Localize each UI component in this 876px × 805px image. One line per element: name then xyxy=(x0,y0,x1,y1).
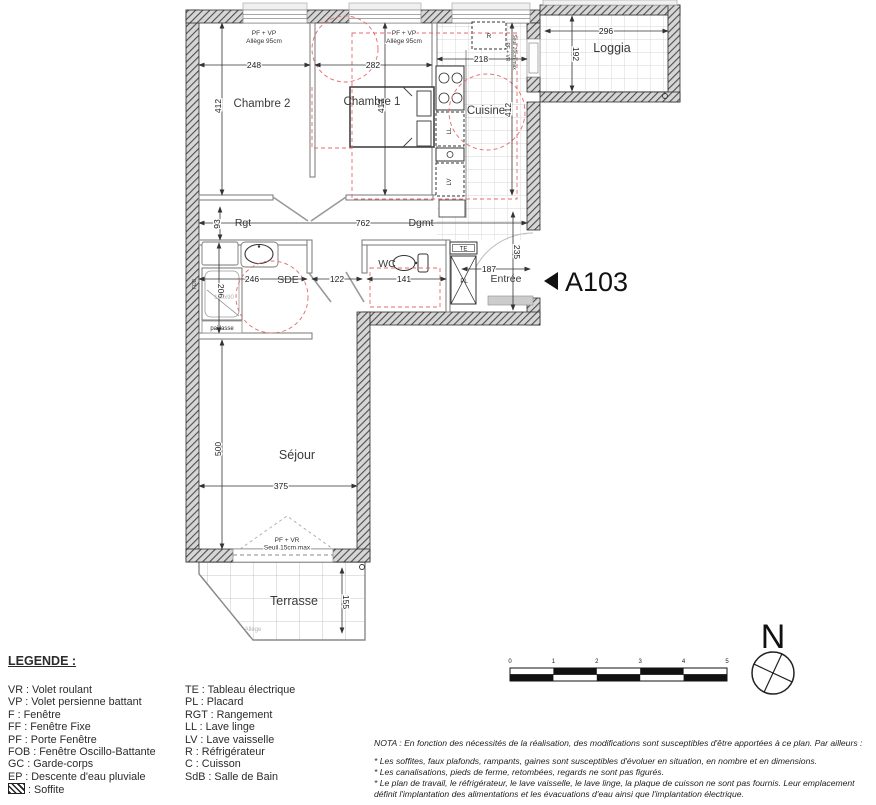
dim-chambre1-width: 282 xyxy=(366,60,380,70)
room-label-dgmt: Dgmt xyxy=(408,217,433,229)
legend-item-soffite: : Soffite xyxy=(8,783,156,796)
legend-item: C : Cuisson xyxy=(185,758,295,770)
room-label-wc: WC xyxy=(378,258,396,270)
floor-plan-svg: 248 282 218 296 192 412 412 412 93 762 2… xyxy=(0,0,876,800)
paillasse-label: paillasse xyxy=(210,326,234,332)
window-chambre1 xyxy=(349,10,421,23)
bathroom-sink-icon xyxy=(202,242,278,267)
dim-passage-width: 122 xyxy=(330,274,344,284)
legend-item: GC : Garde-corps xyxy=(8,758,156,770)
unit-label: A103 xyxy=(565,267,628,297)
fridge-label: R xyxy=(487,34,492,40)
sejour-window-note-line1: PF + VR xyxy=(275,537,300,544)
kitchen-sink-icon xyxy=(436,148,464,161)
scale-tick-4: 4 xyxy=(682,659,686,665)
room-label-terrasse: Terrasse xyxy=(270,594,318,608)
note-bullet-1: * Les soffites, faux plafonds, rampants,… xyxy=(374,756,872,767)
door-leaf-chambre2 xyxy=(273,197,308,221)
legend-item: LV : Lave vaisselle xyxy=(185,734,295,746)
floor-plan-page: 248 282 218 296 192 412 412 412 93 762 2… xyxy=(0,0,876,800)
entry-direction-icon xyxy=(544,272,558,290)
scale-bar-cells xyxy=(510,668,727,681)
window-note-ch2-line1: PF + VP xyxy=(252,30,276,37)
legend-item: EP : Descente d'eau pluviale xyxy=(8,771,156,783)
soffite-hatch-icon xyxy=(8,783,25,794)
north-label: N xyxy=(761,618,786,656)
plan-notes: NOTA : En fonction des nécessités de la … xyxy=(374,738,872,800)
legend-item: TE : Tableau électrique xyxy=(185,684,295,696)
legend-item: FF : Fenêtre Fixe xyxy=(8,721,156,733)
legend-item: VR : Volet roulant xyxy=(8,684,156,696)
note-bullet-2: * Les canalisations, pieds de ferme, ret… xyxy=(374,767,872,778)
window-note-ch1-line1: PF + VP xyxy=(392,30,416,37)
room-label-chambre2: Chambre 2 xyxy=(234,98,291,110)
room-label-cuisine: Cuisine xyxy=(467,105,505,117)
dim-loggia-height: 192 xyxy=(571,47,581,61)
door-leaf-wc xyxy=(346,272,364,302)
loggia-door-note-line1: PF + VR xyxy=(504,42,510,61)
terrasse-allege-note: Allège xyxy=(245,627,262,633)
dim-rgt: 93 xyxy=(212,219,222,229)
note-bullet-3: * Le plan de travail, le réfrigérateur, … xyxy=(374,778,872,800)
window-cuisine xyxy=(452,10,530,23)
te-label: TE xyxy=(460,247,468,253)
dim-chambre2-height: 412 xyxy=(213,99,223,113)
dim-sejour-width: 375 xyxy=(274,481,288,491)
legend-soffite-label: : Soffite xyxy=(28,784,64,796)
dim-corridor: 762 xyxy=(356,218,370,228)
scale-tick-2: 2 xyxy=(595,659,599,665)
room-label-sde: SDE xyxy=(277,274,299,286)
scale-tick-3: 3 xyxy=(639,659,643,665)
loggia-door xyxy=(527,39,540,77)
toilet-icon xyxy=(393,254,428,272)
nota-text: NOTA : En fonction des nécessités de la … xyxy=(374,738,872,749)
dim-sejour-height: 500 xyxy=(213,442,223,456)
legend-column-1: VR : Volet roulant VP : Volet persienne … xyxy=(8,684,156,797)
legend-title: LEGENDE : xyxy=(8,654,76,668)
legend-item: LL : Lave linge xyxy=(185,721,295,733)
room-label-loggia: Loggia xyxy=(593,41,631,55)
washing-machine-label: LL xyxy=(447,127,453,134)
legend-item: PF : Porte Fenêtre xyxy=(8,734,156,746)
scale-tick-0: 0 xyxy=(508,659,512,665)
legend-column-2: TE : Tableau électrique PL : Placard RGT… xyxy=(185,684,295,783)
legend-item: R : Réfrigérateur xyxy=(185,746,295,758)
window-note-ch1-line2: Allège 95cm xyxy=(386,38,422,45)
legend-item: SdB : Salle de Bain xyxy=(185,771,295,783)
room-label-chambre1: Chambre 1 xyxy=(344,96,401,108)
window-chambre2 xyxy=(243,10,307,23)
door-leaf-sde xyxy=(309,273,331,302)
dim-entree-height: 235 xyxy=(512,245,522,259)
fob-label: FOB xyxy=(192,278,198,289)
legend-item: PL : Placard xyxy=(185,696,295,708)
entry-threshold xyxy=(488,296,533,305)
legend-item: FOB : Fenêtre Oscillo-Battante xyxy=(8,746,156,758)
scale-tick-1: 1 xyxy=(552,659,556,665)
window-note-ch2-line2: Allège 95cm xyxy=(246,38,282,45)
scale-bar: 0 1 2 3 4 5 xyxy=(508,659,729,681)
door-leaf-chambre1 xyxy=(311,197,346,221)
shower-size-note: 120x90 xyxy=(214,295,234,301)
dim-loggia-width: 296 xyxy=(599,26,613,36)
sejour-window-note-line2: Seuil 15cm max xyxy=(264,545,311,552)
unit-marker: A103 xyxy=(544,267,628,297)
legend-item: F : Fenêtre xyxy=(8,709,156,721)
legend: LEGENDE : xyxy=(8,652,76,670)
loggia-door-note-line2: Seuil 20cm max xyxy=(511,34,517,70)
room-label-entree: Entrée xyxy=(491,273,522,285)
legend-item: VP : Volet persienne battant xyxy=(8,696,156,708)
dim-wc-width: 141 xyxy=(397,274,411,284)
dim-sde-width: 246 xyxy=(245,274,259,284)
dim-terrasse-height: 155 xyxy=(341,595,351,609)
pl-label: PL xyxy=(460,279,468,285)
dim-chambre2-width: 248 xyxy=(247,60,261,70)
counter-box xyxy=(439,200,465,217)
room-label-sejour: Séjour xyxy=(279,448,315,462)
room-label-rgt: Rgt xyxy=(235,217,251,229)
scale-tick-5: 5 xyxy=(725,659,729,665)
entry-door-swing xyxy=(468,233,533,298)
dishwasher-label: LV xyxy=(447,179,453,186)
legend-item: RGT : Rangement xyxy=(185,709,295,721)
north-compass-icon: N xyxy=(752,618,794,694)
dim-cuisine-width: 218 xyxy=(474,54,488,64)
